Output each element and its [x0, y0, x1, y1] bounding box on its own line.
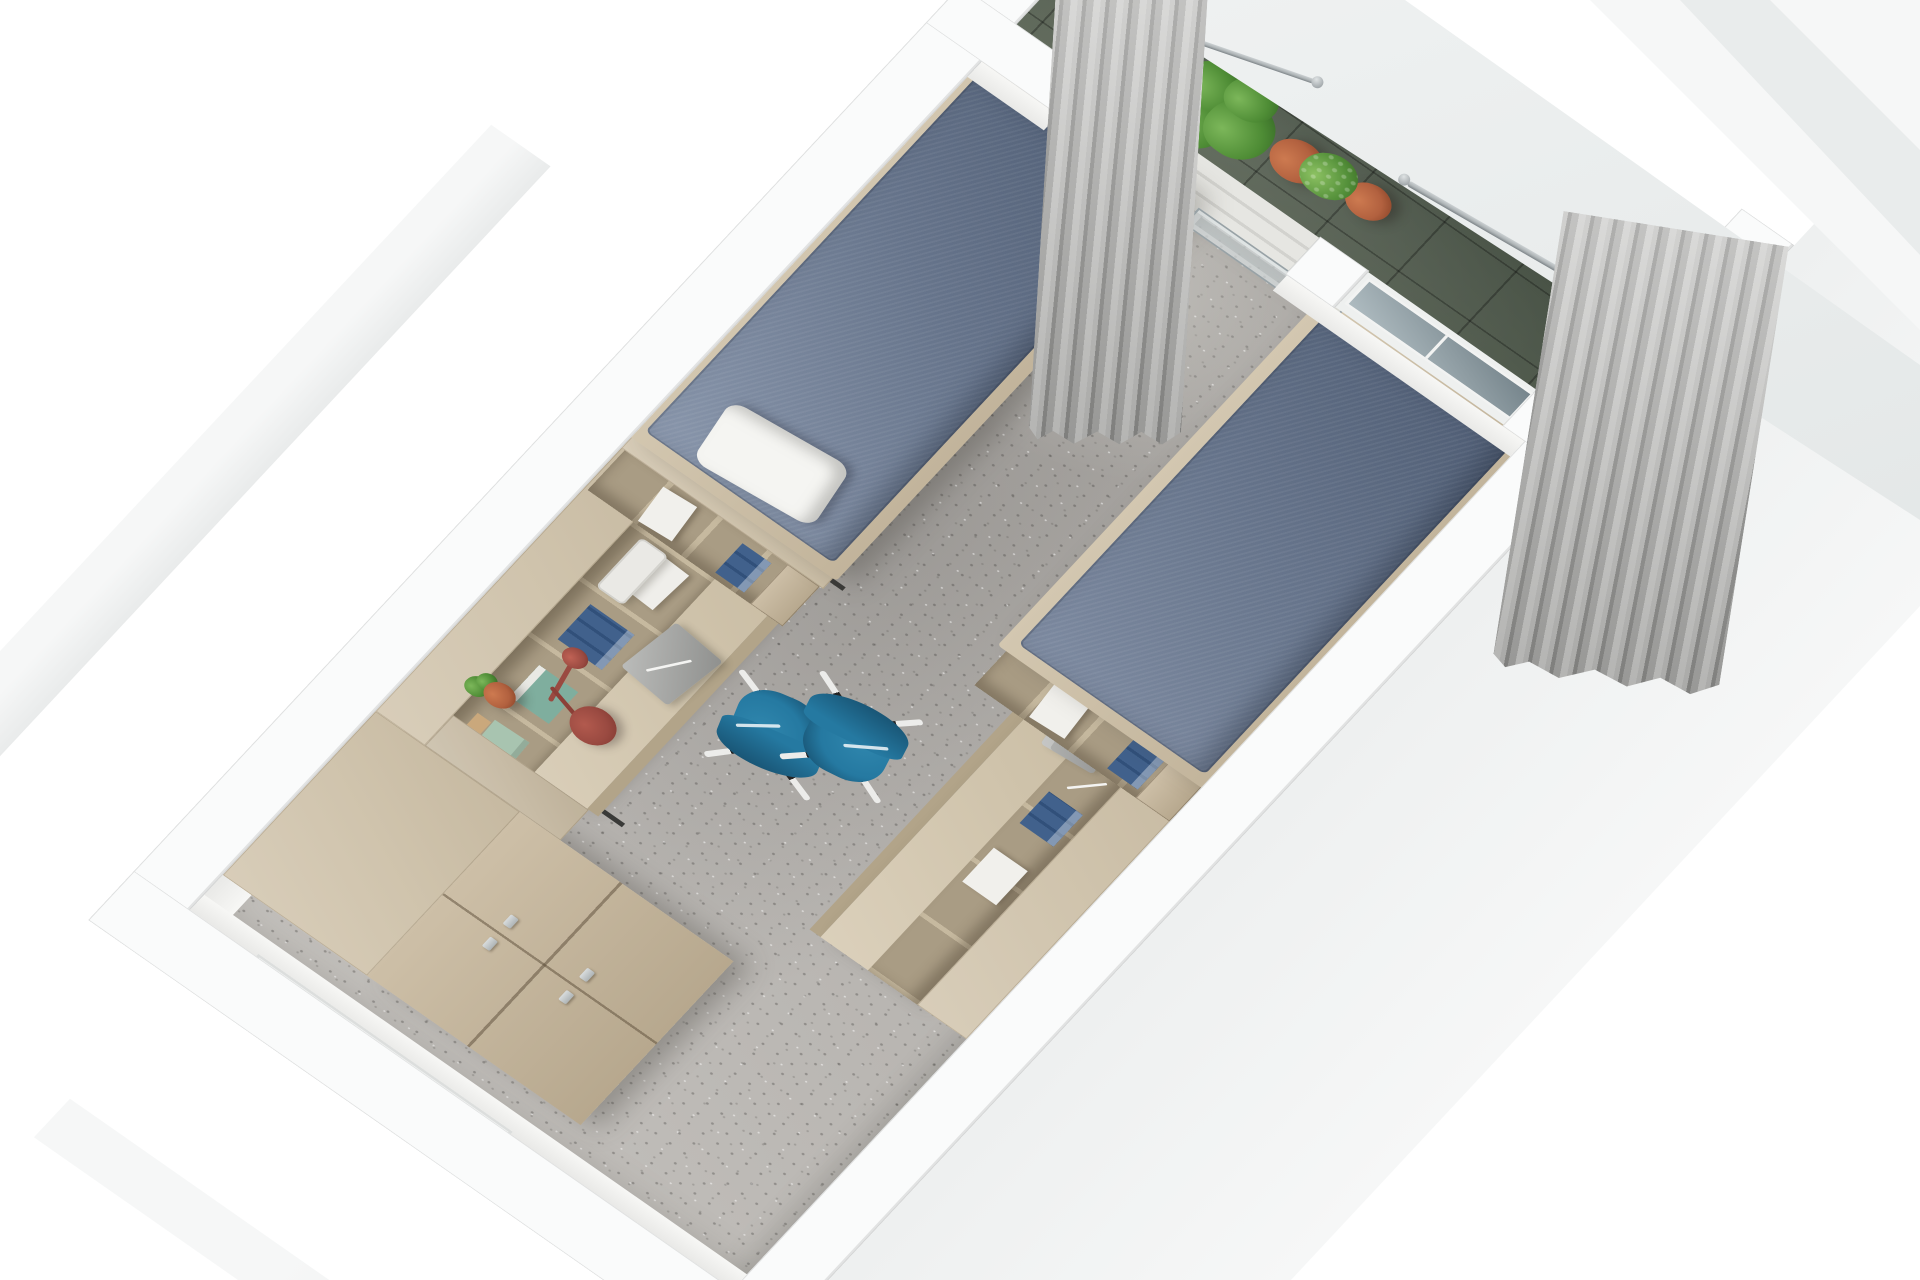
wardrobe-handle: [482, 936, 498, 951]
dorm-room-3d-render: [0, 0, 1920, 1280]
wardrobe-handle: [502, 914, 518, 929]
wardrobe-handle: [579, 968, 595, 983]
pen: [646, 660, 693, 672]
blue-binders: [715, 543, 771, 592]
wardrobe-handle: [558, 990, 574, 1005]
curtain-left: [1028, 0, 1208, 450]
window-divider: [1425, 335, 1448, 359]
lamp-head: [557, 643, 593, 674]
